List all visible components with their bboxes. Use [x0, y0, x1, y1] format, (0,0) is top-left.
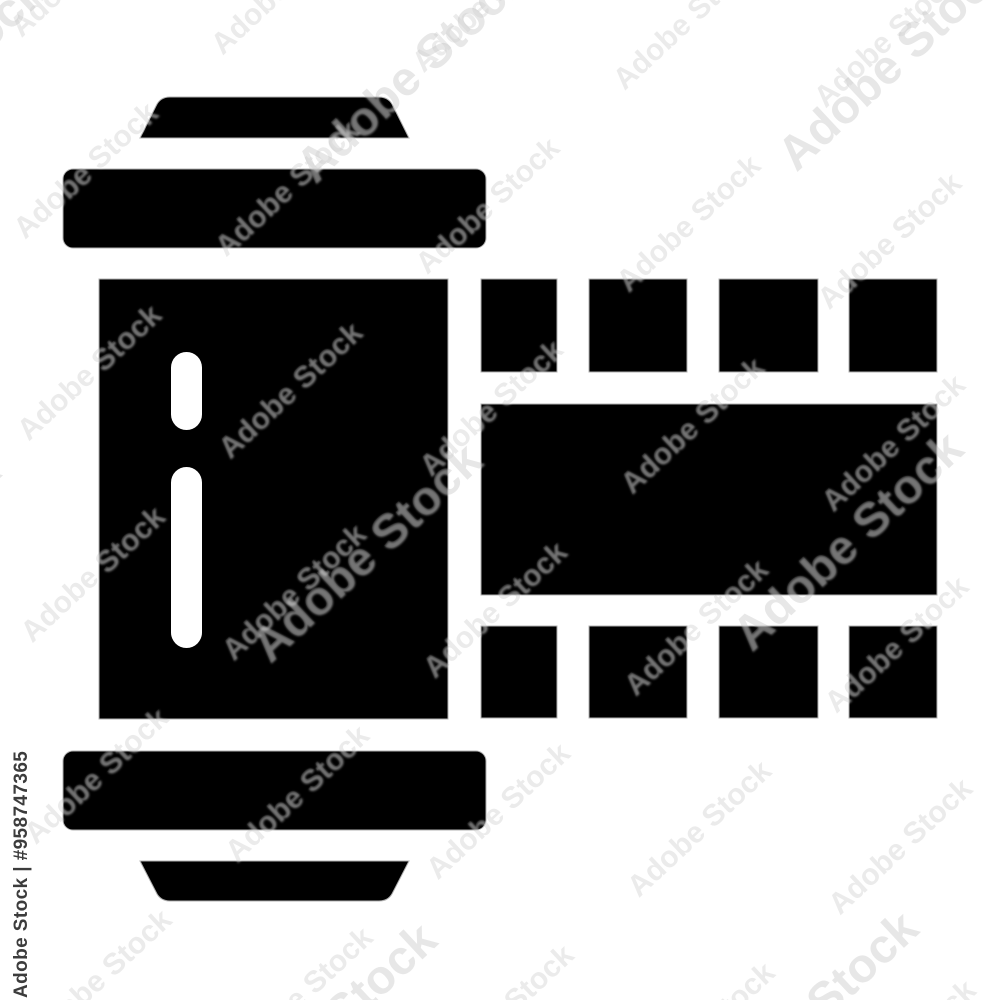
film-sprocket-top-2 — [589, 279, 687, 372]
stock-image-canvas: Adobe StockAdobe StockAdobe StockAdobe S… — [0, 0, 1000, 1000]
canister-top-cap — [63, 169, 486, 248]
film-sprocket-top-4 — [849, 279, 937, 372]
film-frame — [481, 404, 937, 595]
camera-film-roll-icon — [0, 0, 1000, 1000]
film-sprocket-bottom-3 — [719, 626, 818, 718]
film-sprocket-top-3 — [719, 279, 818, 372]
canister-body — [99, 279, 448, 719]
film-sprocket-top-1 — [481, 279, 557, 372]
film-sprocket-bottom-4 — [849, 626, 937, 718]
canister-label-pill-long — [171, 467, 202, 648]
canister-bottom-knob — [140, 861, 409, 901]
canister-bottom-cap — [63, 751, 486, 830]
canister-top-knob — [140, 97, 409, 138]
film-sprocket-bottom-1 — [481, 626, 557, 718]
film-sprocket-bottom-2 — [589, 626, 687, 718]
canister-label-pill-short — [171, 352, 202, 430]
